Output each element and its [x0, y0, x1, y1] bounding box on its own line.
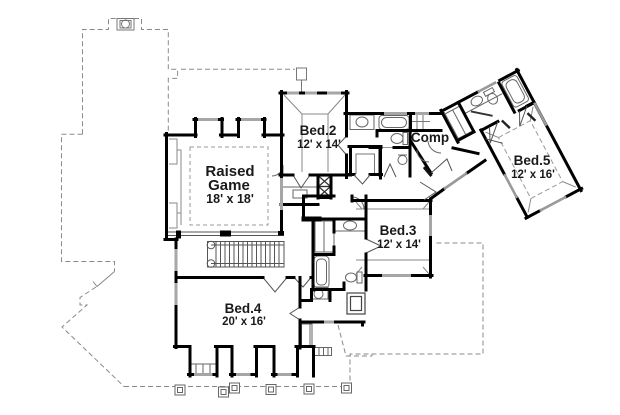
svg-text:18' x 18': 18' x 18' [206, 192, 254, 206]
svg-text:12' x 14': 12' x 14' [297, 139, 341, 151]
svg-text:12' x 16': 12' x 16' [511, 169, 555, 181]
svg-text:Bed.4: Bed.4 [225, 301, 262, 316]
svg-text:Bed.3: Bed.3 [380, 223, 417, 238]
svg-text:Comp: Comp [411, 130, 449, 145]
svg-text:20' x 16': 20' x 16' [222, 316, 266, 328]
svg-text:Bed.2: Bed.2 [300, 123, 337, 138]
svg-text:Bed.5: Bed.5 [514, 153, 551, 168]
svg-text:12' x 14': 12' x 14' [377, 239, 421, 251]
